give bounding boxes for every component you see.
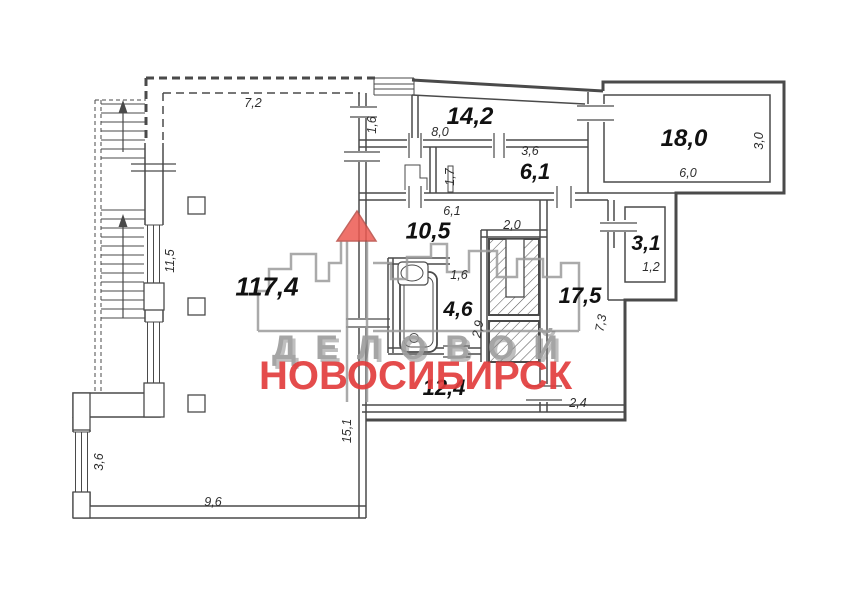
column: [188, 298, 205, 315]
room-area-10-5: 10,5: [406, 218, 451, 245]
room-area-6-1: 6,1: [520, 159, 551, 185]
shaft-notch: [506, 239, 524, 297]
stair-wall-window-icon: [144, 322, 164, 383]
dim-3-0: 3,0: [752, 132, 766, 149]
wall-corner-block: [73, 492, 90, 518]
window-left-icon: [72, 432, 91, 492]
dim-11-5: 11,5: [163, 249, 177, 272]
watermark-line2: НОВОСИБИРСК: [259, 356, 572, 396]
floor-plan-page: 117,4 14,2 6,1 18,0 10,5 3,1 17,5 4,6 12…: [0, 0, 845, 600]
column: [188, 197, 205, 214]
dim-9-6: 9,6: [204, 495, 221, 509]
dim-6-0: 6,0: [679, 166, 696, 180]
room-area-3-1: 3,1: [631, 232, 660, 256]
sink-icon: [398, 262, 428, 285]
room-area-117-4: 117,4: [235, 272, 298, 303]
dim-3-6-left: 3,6: [92, 453, 106, 470]
logo-tower-roof-icon: [337, 211, 376, 241]
dim-1-6-nook: 1,6: [365, 116, 379, 133]
stairs-up-arrow-icon: [119, 100, 128, 152]
dim-1-6-bath: 1,6: [450, 268, 467, 282]
wall-corner-block: [73, 393, 90, 430]
dim-15-1: 15,1: [340, 419, 354, 443]
room-area-4-6: 4,6: [443, 298, 472, 322]
dim-3-6-top: 3,6: [521, 144, 538, 158]
dim-1-7: 1,7: [443, 168, 457, 185]
dim-7-2: 7,2: [244, 96, 261, 110]
floor-plan: [0, 0, 845, 600]
stair-wall-window-icon: [144, 225, 164, 283]
room-area-14-2: 14,2: [447, 103, 494, 131]
column: [188, 395, 205, 412]
dim-2-0: 2,0: [503, 218, 520, 232]
dim-8-0: 8,0: [431, 125, 448, 139]
dim-2-4: 2,4: [569, 396, 586, 410]
dim-6-1: 6,1: [443, 204, 460, 218]
room-area-17-5: 17,5: [559, 283, 602, 309]
stairs-up-arrow-icon: [119, 214, 128, 318]
dim-7-3: 7,3: [593, 313, 610, 333]
room-area-18-0: 18,0: [661, 125, 708, 153]
dim-1-2: 1,2: [642, 260, 659, 274]
window-top-icon: [374, 78, 414, 95]
